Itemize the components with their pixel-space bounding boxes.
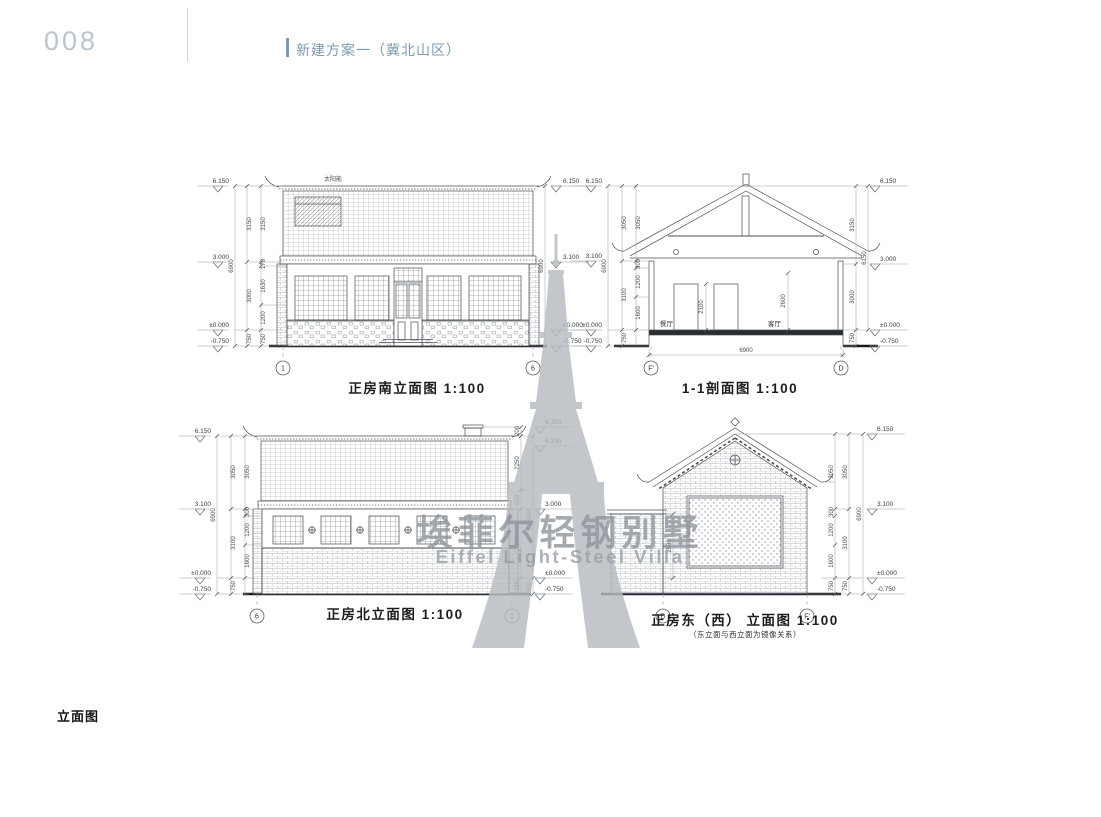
footer-label: 立面图 [57, 706, 99, 725]
dim-label: 2100 [699, 300, 705, 314]
courtyard-wall [611, 514, 663, 594]
dim-label: 3050 [829, 465, 835, 479]
interior-door [674, 284, 698, 330]
dim-label: 3050 [622, 216, 628, 230]
dim-label: 1200 [261, 311, 267, 325]
dim-label: 500 [527, 581, 533, 592]
grid-bubble-label: D [838, 366, 843, 373]
dim-label: 750 [622, 332, 628, 343]
dim-label: 3100 [231, 536, 237, 550]
stone-base [422, 321, 529, 346]
brick-wall [262, 548, 509, 594]
tiled-roof [261, 441, 508, 501]
east-elevation-title: 正房东（西） 立面图 1:100 [605, 609, 885, 629]
dim-label: 3050 [843, 465, 849, 479]
room-label: 客厅 [768, 319, 782, 328]
dim-label: 170 [261, 258, 267, 269]
east-elevation-subtitle: （东立面与西立面为镜像关系） [605, 629, 885, 640]
window [427, 276, 461, 320]
dim-label: 750 [247, 333, 253, 344]
window [465, 516, 495, 544]
dim-label: 1600 [829, 554, 835, 568]
elevation-mark: 6.150 [877, 426, 894, 433]
floor-slab [649, 330, 843, 335]
north-dims-left: 3050 300 1200 1600 3050 3100 750 6900 6.… [179, 428, 262, 600]
window [321, 516, 351, 544]
chimney [465, 428, 481, 436]
section-title: 1-1剖面图 1:100 [620, 377, 860, 397]
dim-label: 6900 [739, 348, 753, 354]
dim-label: 200 [515, 425, 521, 436]
dim-label: 750 [829, 580, 835, 591]
ridge-finial [731, 418, 739, 426]
elevation-mark: 3.100 [195, 501, 212, 508]
corner-pier [253, 509, 262, 594]
north-elevation-title: 正房北立面图 1:100 [275, 603, 515, 623]
grid-bubble-label: 6 [255, 614, 259, 621]
dim-label: 150 [515, 580, 521, 591]
section-width-dim: 6900 [647, 348, 845, 358]
dim-total: 6900 [857, 507, 863, 521]
elevation-mark: ±0.000 [582, 322, 602, 329]
dim-label: 1200 [245, 523, 251, 537]
dim-label: 3050 [636, 216, 642, 230]
elevation-mark: 6.150 [586, 178, 603, 185]
dim-label: 1200 [636, 275, 642, 289]
north-building [243, 425, 531, 594]
dim-label: 300 [829, 506, 835, 517]
dim-label: 3150 [850, 218, 856, 232]
elevation-mark: 6.350 [545, 419, 562, 426]
dim-label: 300 [636, 258, 642, 269]
south-elevation-drawing: 太阳能 3150 170 1630 1200 750 3150 3000 750… [183, 150, 603, 382]
elevation-mark: -0.750 [211, 338, 230, 345]
page-number: 008 [44, 26, 98, 57]
south-elevation-title: 正房南立面图 1:100 [297, 377, 537, 397]
east-building [601, 418, 841, 594]
grid-bubble-label: F' [648, 366, 654, 373]
elevation-mark: -0.750 [880, 338, 899, 345]
room-label: 餐厅 [660, 319, 674, 328]
elevation-mark: 6.150 [213, 178, 230, 185]
section-dims-left: 3050 300 1200 1600 3050 3100 750 6900 6.… [570, 178, 746, 352]
elevation-mark: 3.100 [877, 501, 894, 508]
dim-label: 600 [515, 494, 521, 505]
elevation-mark: 6.150 [880, 178, 897, 185]
window [469, 276, 521, 320]
dim-label: 2500 [667, 539, 673, 553]
dim-label: 750 [843, 580, 849, 591]
solar-panel [295, 197, 341, 226]
entry-door [394, 268, 422, 346]
dim-label: 1600 [636, 306, 642, 320]
dim-total: 6900 [527, 508, 533, 522]
window [369, 516, 399, 544]
dim-label: 2250 [515, 456, 521, 470]
dim-label: 1630 [261, 279, 267, 293]
dim-label: 3100 [843, 536, 849, 550]
elevation-mark: -0.750 [193, 586, 212, 593]
south-building [265, 176, 551, 346]
dim-label: 3150 [247, 217, 253, 231]
south-dims-left: 3150 170 1630 1200 750 3150 3000 750 690… [197, 178, 287, 352]
header-divider [187, 8, 188, 62]
elevation-mark: 6.150 [195, 428, 212, 435]
window [355, 276, 389, 320]
header-title: 新建方案一（冀北山区） [296, 40, 461, 60]
grid-bubble-label: 1 [281, 366, 285, 373]
dim-total: 6900 [229, 259, 235, 273]
elevation-mark: ±0.000 [877, 570, 897, 577]
elevation-mark: 6.150 [545, 438, 562, 445]
chimney-cap [463, 425, 483, 428]
section-drawing: 2100 2600 餐厅 客厅 3050 300 1200 1600 3050 … [556, 150, 936, 382]
dim-total: 6900 [602, 259, 608, 273]
dim-label: 750 [850, 332, 856, 343]
eave-band [280, 256, 536, 264]
dim-label: 3000 [515, 536, 521, 550]
stone-base [287, 321, 394, 346]
drawing-page: { "page": { "number": "008", "header_tit… [0, 0, 1101, 817]
corner-pier [529, 264, 539, 346]
elevation-mark: -0.750 [545, 586, 564, 593]
north-elevation-drawing: 3050 300 1200 1600 3050 3100 750 6900 6.… [165, 396, 625, 634]
lattice-panel [689, 498, 781, 566]
window [295, 276, 347, 320]
dim-label: 300 [245, 506, 251, 517]
elevation-mark: 3.000 [545, 501, 562, 508]
dim-label: 3150 [261, 217, 267, 231]
dim-label: 1600 [245, 554, 251, 568]
dim-label: 3100 [622, 288, 628, 302]
elevation-mark: ±0.000 [880, 322, 900, 329]
window [417, 516, 447, 544]
window [273, 516, 303, 544]
elevation-mark: 3.000 [213, 254, 230, 261]
section-interior-dims: 2100 2600 餐厅 客厅 [660, 271, 790, 332]
dim-total: 6900 [539, 259, 545, 273]
elevation-mark: ±0.000 [191, 570, 211, 577]
header-accent-bar [286, 38, 289, 57]
dim-total: 6900 [211, 508, 217, 522]
elevation-mark: ±0.000 [545, 570, 565, 577]
elevation-mark: ±0.000 [209, 322, 229, 329]
wall-coping [607, 510, 667, 514]
elevation-mark: -0.750 [877, 586, 896, 593]
dim-label: 750 [261, 333, 267, 344]
dim-label: 3000 [850, 290, 856, 304]
dim-label: 750 [231, 580, 237, 591]
elevation-mark: 3.000 [880, 256, 897, 263]
elevation-mark: 3.100 [586, 253, 603, 260]
elevation-mark: -0.750 [584, 338, 603, 345]
dim-label: 2600 [781, 294, 787, 308]
solar-label: 太阳能 [324, 175, 342, 183]
dim-label: 3050 [231, 465, 237, 479]
interior-door [714, 284, 738, 330]
dim-label: 1200 [829, 523, 835, 537]
section-building [612, 174, 880, 346]
dim-label: 3000 [247, 289, 253, 303]
grid-bubbles: 1 6 [276, 346, 540, 375]
dim-label: 3050 [245, 465, 251, 479]
grid-bubble-label: 6 [531, 366, 535, 373]
dim-total: 6150 [862, 251, 868, 265]
